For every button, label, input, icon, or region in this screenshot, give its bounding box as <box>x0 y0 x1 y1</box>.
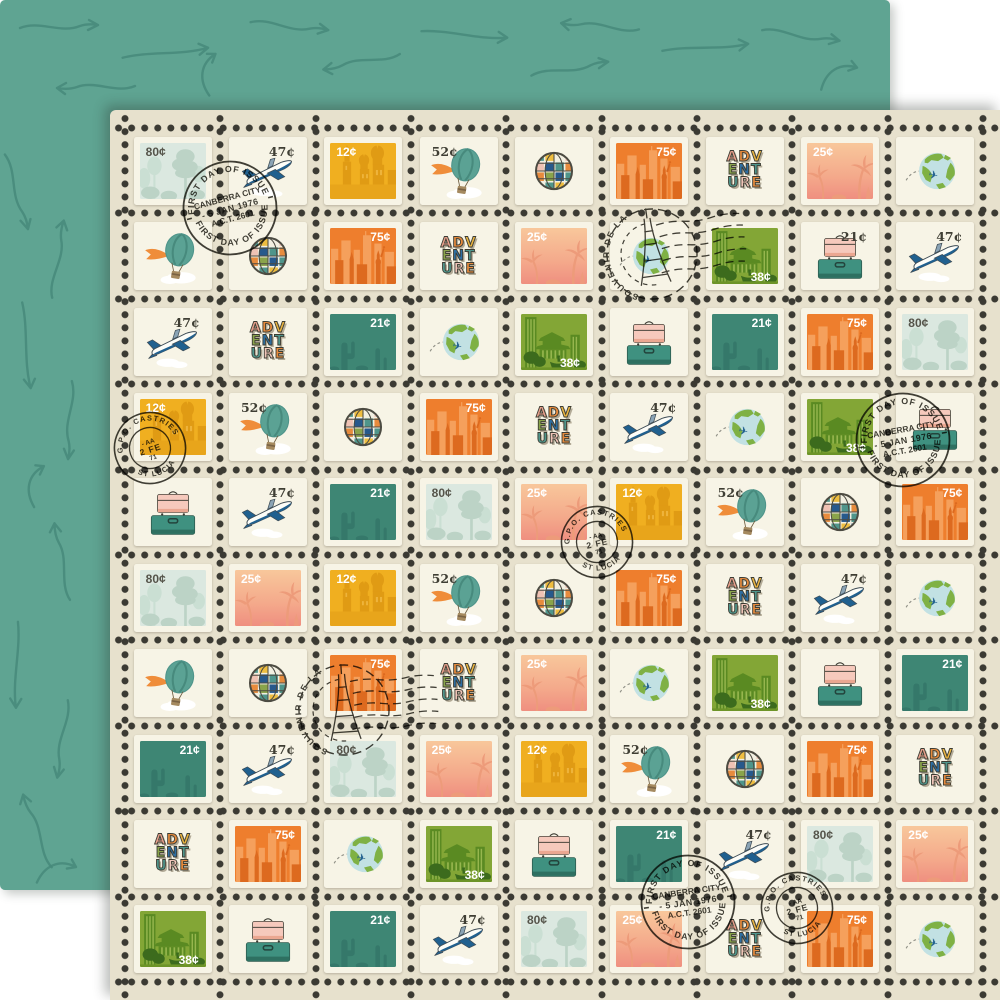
stamp-denomination: 47¢ <box>460 914 486 927</box>
stamp-balloon: 52¢ <box>706 478 784 546</box>
svg-text:SOUVENIR DE LA: SOUVENIR DE LA <box>290 666 330 760</box>
perforation-dotted-line-horizontal <box>110 807 1000 815</box>
earth-stamp-art-icon: ✈ <box>902 570 968 626</box>
adventure-letter: E <box>561 431 572 447</box>
earth-stamp-art-icon: ✈ <box>330 826 396 882</box>
stamp-denomination: 75¢ <box>656 146 676 158</box>
perforation-dotted-line-horizontal <box>110 978 1000 986</box>
adventure-letter: E <box>465 688 476 704</box>
stamp-balloon: 52¢ <box>420 137 498 205</box>
stamp-tree: 80¢ <box>896 308 974 376</box>
stamp-denomination: 47¢ <box>174 317 200 330</box>
adventure-letter: U <box>727 602 739 618</box>
stamp-denomination: 80¢ <box>146 573 166 585</box>
stamp-earth: ✈ <box>324 820 402 888</box>
stamp-adv: ADVENTURE <box>229 308 307 376</box>
stamp-denomination: 25¢ <box>813 146 833 158</box>
stamp-denomination: 25¢ <box>241 573 261 585</box>
svg-text:ST LUCIA: ST LUCIA <box>780 917 825 943</box>
globe-stamp-art-icon <box>712 741 778 797</box>
adventure-letter: E <box>942 773 953 789</box>
stamp-globe <box>515 137 593 205</box>
stamp-plane: 47¢ <box>134 308 212 376</box>
stamp-green: 38¢ <box>706 649 784 717</box>
stamp-tree: 80¢ <box>134 564 212 632</box>
stamp-cactus: 21¢ <box>324 308 402 376</box>
adventure-letter: E <box>751 602 762 618</box>
adventure-letter: R <box>740 602 752 618</box>
stamp-denomination: 12¢ <box>336 146 356 158</box>
postmark-first-day: FIRST DAY OF ISSUE CANBERRA CITY - 5 JAN… <box>613 827 762 976</box>
perforation-dotted-line-vertical <box>884 110 892 1000</box>
stamp-palm: 25¢ <box>896 820 974 888</box>
stamp-denomination: 12¢ <box>336 573 356 585</box>
stamp-denomination: 21¢ <box>841 231 867 244</box>
stamp-palm: 25¢ <box>515 222 593 290</box>
case-stamp-art-icon <box>616 314 682 370</box>
adventure-letter: R <box>454 261 466 277</box>
stamp-cactus: 21¢ <box>896 649 974 717</box>
postmark-gpo: G.P.O. CASTRIES - AA 2 FE 71 ST LUCIA <box>542 487 651 596</box>
stamp-denomination: 38¢ <box>751 698 771 710</box>
stamp-denomination: 21¢ <box>180 744 200 756</box>
stamp-denomination: 80¢ <box>432 487 452 499</box>
adventure-lettering: ADVENTURE <box>521 399 587 455</box>
stamp-castle: 12¢ <box>515 735 593 803</box>
stamp-cactus: 21¢ <box>134 735 212 803</box>
adventure-lettering: ADVENTURE <box>902 741 968 797</box>
stamp-denomination: 75¢ <box>847 744 867 756</box>
adventure-letter: R <box>263 346 275 362</box>
stamp-denomination: 25¢ <box>908 829 928 841</box>
stamp-castle: 12¢ <box>324 137 402 205</box>
stamp-denomination: 21¢ <box>370 317 390 329</box>
adventure-letter: U <box>918 773 930 789</box>
stamp-tree: 80¢ <box>515 905 593 973</box>
case-stamp-art-icon <box>521 826 587 882</box>
stamp-case: 21¢ <box>801 222 879 290</box>
stamp-castle: 12¢ <box>324 564 402 632</box>
postmark-souvenir: SOUVENIR DE LA <box>286 647 443 769</box>
stamp-denomination: 25¢ <box>527 231 547 243</box>
stamp-city: 75¢ <box>801 735 879 803</box>
stamp-cactus: 21¢ <box>324 478 402 546</box>
perforation-dotted-line-horizontal <box>110 124 1000 132</box>
stamp-denomination: 47¢ <box>746 829 772 842</box>
stamp-earth: ✈ <box>706 393 784 461</box>
stamp-city: 75¢ <box>801 308 879 376</box>
stamp-plane: 47¢ <box>801 564 879 632</box>
stamp-adv: ADVENTURE <box>515 393 593 461</box>
adventure-letter: U <box>251 346 263 362</box>
stamp-case <box>801 649 879 717</box>
stamp-adv: ADVENTURE <box>420 222 498 290</box>
stamp-denomination: 80¢ <box>527 914 547 926</box>
stamp-denomination: 52¢ <box>432 573 458 586</box>
stamp-case <box>229 905 307 973</box>
adventure-letter: R <box>549 431 561 447</box>
stamp-denomination: 25¢ <box>527 658 547 670</box>
adventure-letter: E <box>179 858 190 874</box>
stamp-denomination: 25¢ <box>527 487 547 499</box>
stamp-earth: ✈ <box>420 308 498 376</box>
stamp-globe <box>706 735 784 803</box>
scrapbook-paper-mockup: 80¢ 47¢ 12¢ 52¢ 75¢ADVENTURE 25¢ ✈ 75¢AD… <box>0 0 1000 1000</box>
stamp-denomination: 47¢ <box>841 573 867 586</box>
stamp-plane: 47¢ <box>420 905 498 973</box>
earth-stamp-art-icon: ✈ <box>426 314 492 370</box>
stamp-denomination: 75¢ <box>847 914 867 926</box>
stamp-cactus: 21¢ <box>324 905 402 973</box>
adventure-letter: R <box>168 858 180 874</box>
adventure-lettering: ADVENTURE <box>426 228 492 284</box>
stamp-city: 75¢ <box>420 393 498 461</box>
stamp-green: 38¢ <box>134 905 212 973</box>
stamp-denomination: 38¢ <box>560 357 580 369</box>
perforation-dotted-line-vertical <box>121 110 129 1000</box>
stamp-denomination: 75¢ <box>466 402 486 414</box>
adventure-letter: R <box>740 175 752 191</box>
adventure-letter: E <box>275 346 286 362</box>
stamp-denomination: 75¢ <box>656 573 676 585</box>
perforation-dotted-line-horizontal <box>110 295 1000 303</box>
stamp-denomination: 80¢ <box>813 829 833 841</box>
stamp-balloon: 52¢ <box>420 564 498 632</box>
stamp-denomination: 21¢ <box>370 914 390 926</box>
stamp-denomination: 38¢ <box>179 954 199 966</box>
stamp-denomination: 52¢ <box>718 487 744 500</box>
svg-text:71: 71 <box>149 453 158 462</box>
perforation-dotted-line-vertical <box>502 110 510 1000</box>
adventure-lettering: ADVENTURE <box>140 826 206 882</box>
stamp-denomination: 38¢ <box>465 869 485 881</box>
stamp-palm: 25¢ <box>515 649 593 717</box>
perforation-dotted-line-horizontal <box>110 722 1000 730</box>
globe-stamp-art-icon <box>330 399 396 455</box>
stamp-plane: 47¢ <box>896 222 974 290</box>
stamp-plane: 47¢ <box>229 478 307 546</box>
stamp-denomination: 47¢ <box>269 744 295 757</box>
earth-stamp-art-icon: ✈ <box>616 655 682 711</box>
stamp-denomination: 52¢ <box>241 402 267 415</box>
perforation-dotted-line-vertical <box>312 110 320 1000</box>
adventure-letter: E <box>751 175 762 191</box>
stamp-denomination: 75¢ <box>275 829 295 841</box>
stamp-earth: ✈ <box>610 649 688 717</box>
stamp-tree: 80¢ <box>420 478 498 546</box>
perforation-dotted-line-vertical <box>407 110 415 1000</box>
adventure-lettering: ADVENTURE <box>712 570 778 626</box>
stamp-adv: ADVENTURE <box>134 820 212 888</box>
adventure-lettering: ADVENTURE <box>235 314 301 370</box>
stamp-globe <box>324 393 402 461</box>
stamp-denomination: 52¢ <box>432 146 458 159</box>
stamp-denomination: 38¢ <box>751 271 771 283</box>
stamp-denomination: 21¢ <box>942 658 962 670</box>
stamp-city: 75¢ <box>229 820 307 888</box>
stamp-palm: 25¢ <box>229 564 307 632</box>
stamp-green: 38¢ <box>515 308 593 376</box>
case-stamp-art-icon <box>807 655 873 711</box>
stamp-denomination: 80¢ <box>908 317 928 329</box>
stamp-green: 38¢ <box>420 820 498 888</box>
stamp-adv: ADVENTURE <box>896 735 974 803</box>
stamp-balloon: 52¢ <box>229 393 307 461</box>
case-stamp-art-icon <box>235 911 301 967</box>
stamp-denomination: 52¢ <box>622 744 648 757</box>
stamp-plane: 47¢ <box>610 393 688 461</box>
earth-stamp-art-icon: ✈ <box>902 143 968 199</box>
earth-stamp-art-icon: ✈ <box>712 399 778 455</box>
svg-text:71: 71 <box>795 914 804 923</box>
stamp-denomination: 75¢ <box>847 317 867 329</box>
adventure-letter: U <box>537 431 549 447</box>
postmark-souvenir: SOUVENIR DE LA <box>591 185 755 317</box>
svg-text:ST LUCIA: ST LUCIA <box>579 552 624 576</box>
stamp-case <box>515 820 593 888</box>
stamp-denomination: 75¢ <box>370 231 390 243</box>
adventure-letter: R <box>930 773 942 789</box>
stamp-denomination: 47¢ <box>650 402 676 415</box>
earth-stamp-art-icon: ✈ <box>902 911 968 967</box>
adventure-letter: U <box>155 858 167 874</box>
stamp-earth: ✈ <box>896 137 974 205</box>
paper-front-stamp-sheet: 80¢ 47¢ 12¢ 52¢ 75¢ADVENTURE 25¢ ✈ 75¢AD… <box>110 110 1000 1000</box>
globe-stamp-art-icon <box>521 143 587 199</box>
stamp-denomination: 47¢ <box>936 231 962 244</box>
postmark-first-day: FIRST DAY OF ISSUE CANBERRA CITY - 5 JAN… <box>827 364 980 517</box>
adventure-letter: R <box>454 688 466 704</box>
stamp-denomination: 80¢ <box>146 146 166 158</box>
stamp-case <box>610 308 688 376</box>
stamp-denomination: 47¢ <box>269 487 295 500</box>
stamp-denomination: 21¢ <box>370 487 390 499</box>
adventure-letter: U <box>441 688 453 704</box>
perforation-dotted-line-horizontal <box>110 636 1000 644</box>
balloon-stamp-art-icon <box>140 655 206 711</box>
adventure-letter: U <box>441 261 453 277</box>
stamp-adv: ADVENTURE <box>706 564 784 632</box>
stamp-city: 75¢ <box>324 222 402 290</box>
stamp-earth: ✈ <box>896 564 974 632</box>
perforation-dotted-line-horizontal <box>110 893 1000 901</box>
stamp-balloon <box>134 649 212 717</box>
adventure-letter: E <box>465 261 476 277</box>
stamp-earth: ✈ <box>896 905 974 973</box>
stamp-denomination: 12¢ <box>527 744 547 756</box>
perforation-dotted-line-vertical <box>979 110 987 1000</box>
stamp-cactus: 21¢ <box>706 308 784 376</box>
stamp-balloon: 52¢ <box>610 735 688 803</box>
stamp-denomination: 21¢ <box>752 317 772 329</box>
svg-text:SOUVENIR DE LA: SOUVENIR DE LA <box>595 211 641 306</box>
svg-text:71: 71 <box>595 548 604 556</box>
stamp-palm: 25¢ <box>801 137 879 205</box>
